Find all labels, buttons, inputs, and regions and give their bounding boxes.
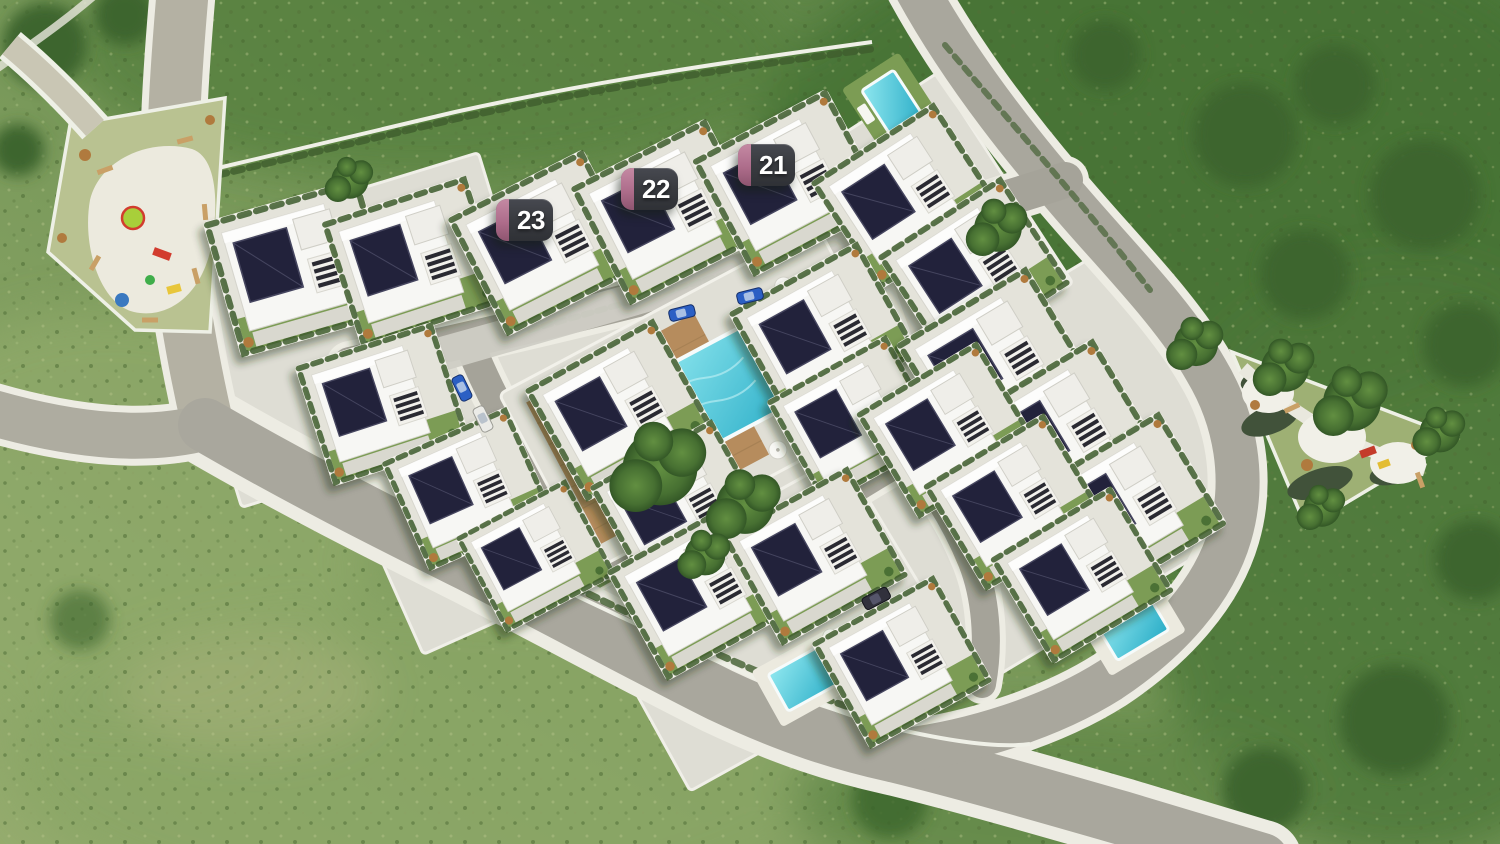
plot-number: 23	[509, 199, 553, 241]
play-spiral	[122, 207, 144, 229]
site-plan-view: 23 22 21	[0, 0, 1500, 844]
site-plan-render	[0, 0, 1500, 844]
marker-accent-strip	[496, 199, 509, 241]
plot-marker-21[interactable]: 21	[738, 144, 795, 186]
plot-number: 21	[751, 144, 795, 186]
marker-accent-strip	[621, 168, 634, 210]
plot-marker-22[interactable]: 22	[621, 168, 678, 210]
plot-number: 22	[634, 168, 678, 210]
marker-accent-strip	[738, 144, 751, 186]
plot-marker-23[interactable]: 23	[496, 199, 553, 241]
play-barrel	[115, 293, 129, 307]
